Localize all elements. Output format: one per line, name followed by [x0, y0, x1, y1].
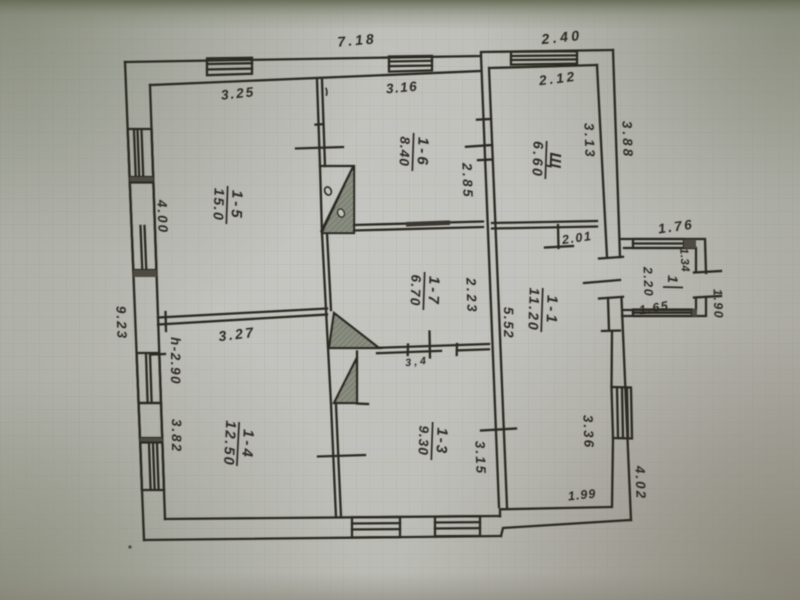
svg-text:1.90: 1.90 — [710, 289, 725, 320]
svg-text:1-5: 1-5 — [227, 190, 245, 221]
svg-text:2.20: 2.20 — [640, 266, 655, 298]
svg-text:3.82: 3.82 — [169, 419, 184, 453]
svg-text:7.18: 7.18 — [337, 30, 377, 49]
svg-text:3,4: 3,4 — [405, 355, 430, 369]
svg-text:2.85: 2.85 — [459, 162, 475, 200]
svg-text:3.13: 3.13 — [581, 123, 597, 160]
svg-text:4.00: 4.00 — [154, 199, 170, 235]
svg-text:1-4: 1-4 — [238, 429, 257, 461]
svg-text:3.36: 3.36 — [580, 415, 596, 450]
svg-text:9.30: 9.30 — [415, 425, 431, 456]
svg-text:4.02: 4.02 — [632, 465, 648, 501]
svg-text:12.50: 12.50 — [220, 420, 238, 467]
svg-text:9.23: 9.23 — [113, 306, 129, 341]
svg-text:Щ: Щ — [546, 152, 564, 169]
svg-text:15.0: 15.0 — [210, 188, 227, 222]
svg-text:6.70: 6.70 — [407, 274, 423, 307]
svg-text:6.60: 6.60 — [529, 141, 546, 179]
svg-text:5.52: 5.52 — [501, 307, 516, 339]
svg-text:h-2.90: h-2.90 — [168, 337, 183, 385]
svg-text:1-3: 1-3 — [433, 427, 451, 455]
svg-text:1-6: 1-6 — [413, 137, 431, 168]
svg-text:1.34: 1.34 — [677, 247, 691, 272]
svg-text:2.23: 2.23 — [463, 277, 479, 315]
svg-text:11.20: 11.20 — [525, 287, 543, 332]
svg-text:3.15: 3.15 — [472, 441, 488, 476]
svg-text:3.88: 3.88 — [619, 121, 635, 160]
svg-text:1: 1 — [665, 275, 681, 284]
svg-text:3.16: 3.16 — [385, 79, 418, 97]
svg-text:1.99: 1.99 — [567, 487, 597, 504]
svg-text:1-1: 1-1 — [542, 295, 560, 326]
svg-text:8.40: 8.40 — [396, 136, 412, 167]
svg-text:1-7: 1-7 — [424, 276, 442, 307]
